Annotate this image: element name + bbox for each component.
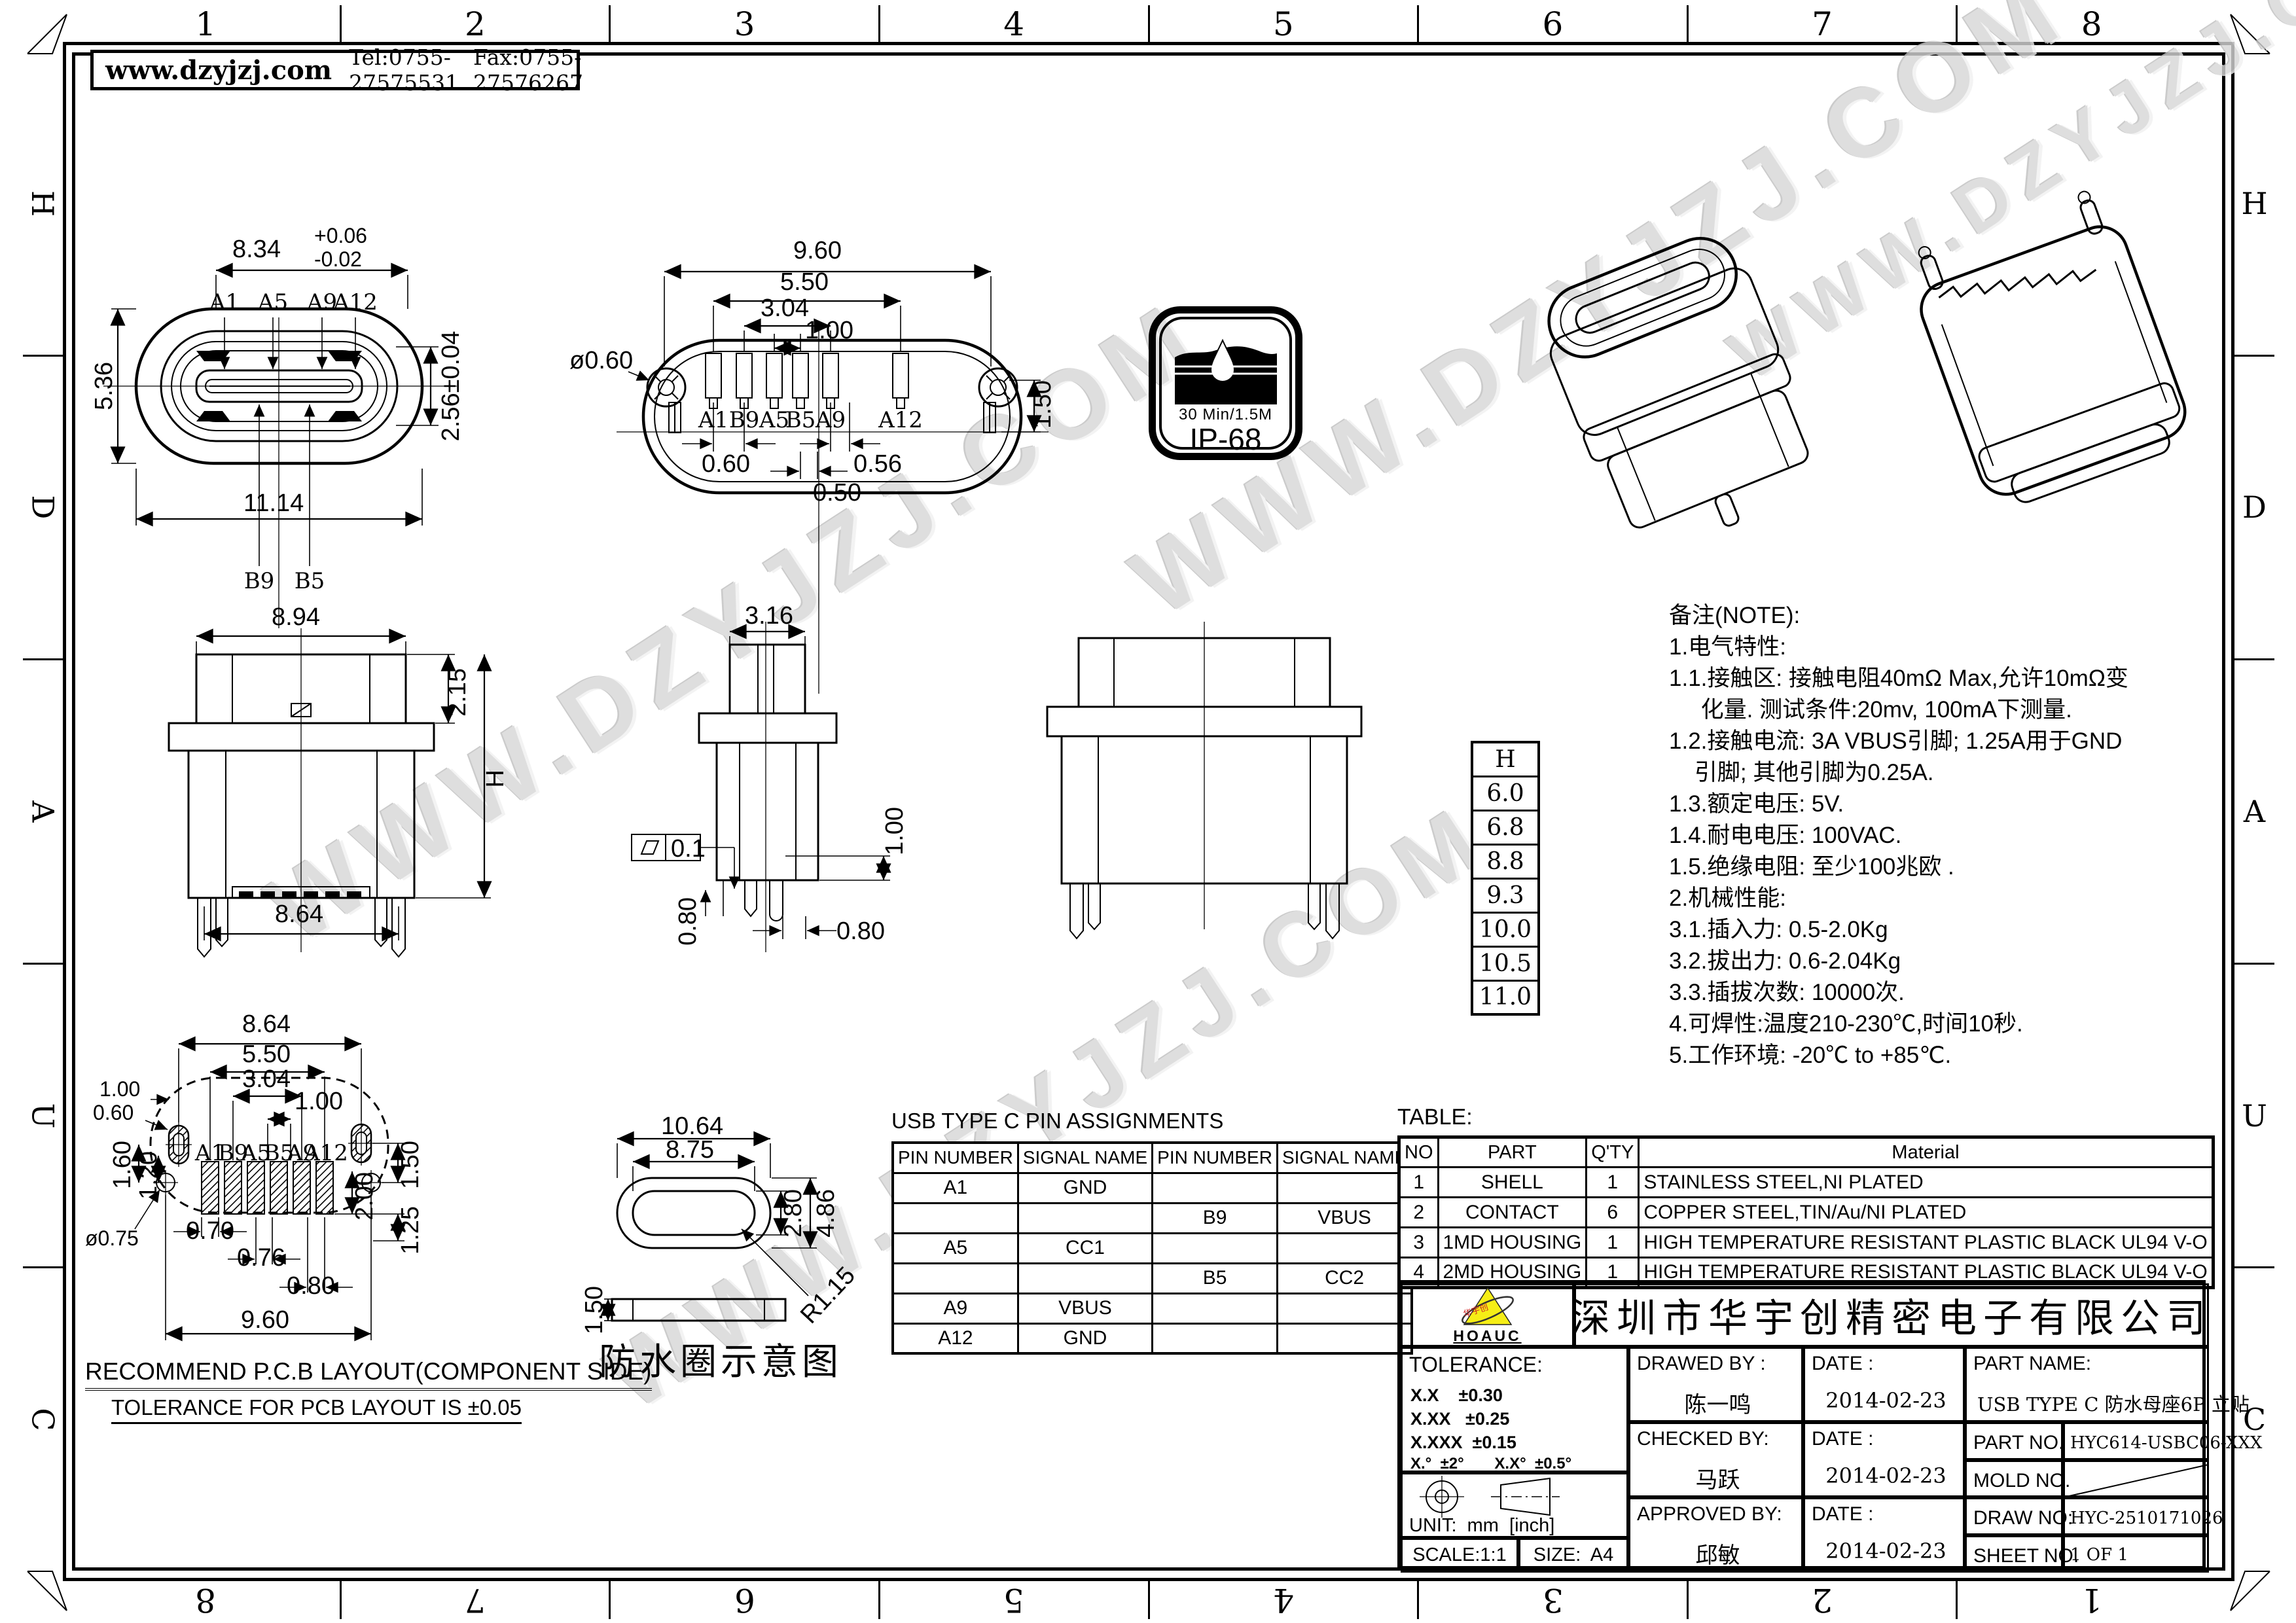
parts-section: TABLE: NO PART Q'TY Material 1SHELL1STAI…	[1397, 1105, 2215, 1289]
approved-by-label: APPROVED BY:	[1637, 1503, 1782, 1525]
part-no-label: PART NO.	[1973, 1432, 2064, 1454]
dim-front-tol-dn: -0.02	[314, 249, 362, 271]
pin-assignment-table: PIN NUMBER SIGNAL NAME PIN NUMBER SIGNAL…	[891, 1141, 1413, 1355]
zone-label: 4	[1150, 1581, 1420, 1619]
note-line: 化量. 测试条件:20mv, 100mA下测量.	[1669, 691, 2232, 722]
h-table-value: 10.0	[1472, 912, 1539, 946]
pin-label-b5: B5	[287, 568, 332, 594]
dim-rear-w2: 5.50	[780, 270, 829, 296]
pin-assignment-section: USB TYPE C PIN ASSIGNMENTS PIN NUMBER SI…	[891, 1109, 1413, 1355]
dim-pcb-t2: 5.50	[242, 1042, 291, 1068]
mold-no-label-cell: MOLD NO.	[1965, 1460, 2063, 1497]
header-contact-box: www.dzyjzj.com Tel:0755-27575531 Fax:075…	[90, 50, 580, 90]
dim-rear-hole: ø0.60	[569, 348, 633, 374]
zone-letter: D	[2242, 490, 2267, 525]
dim-pcb-r3: 1.25	[398, 1165, 424, 1296]
notes-block: 备注(NOTE): 1.电气特性: 1.1.接触区: 接触电阻40mΩ Max,…	[1669, 597, 2232, 1068]
pin-label: A12	[303, 1140, 349, 1166]
date-label: DATE :	[1812, 1353, 1873, 1375]
part-cell: SHELL	[1438, 1168, 1587, 1198]
dim-pcb-hole: ø0.75	[85, 1228, 139, 1250]
zone-letter: A	[2244, 794, 2265, 829]
dim-pcb-b2: 0.76	[237, 1245, 285, 1272]
pin-cell: A9	[893, 1293, 1018, 1323]
projection-symbol-icon	[1403, 1476, 1630, 1518]
zone-label: A	[2234, 660, 2274, 965]
dim-front-height: 5.36	[92, 321, 118, 452]
dim-rear-w3: 3.04	[761, 296, 809, 322]
drawed-date: 2014-02-23	[1805, 1388, 1967, 1413]
zone-number: 4	[1003, 5, 1024, 43]
signal-cell: GND	[1018, 1173, 1152, 1203]
pin-label-a5: A5	[250, 289, 296, 315]
table-row: B9VBUS	[893, 1203, 1412, 1233]
zone-label: 7	[342, 1581, 611, 1619]
dim-gasket-thickness: 1.50	[582, 1245, 608, 1376]
tolerance-row: X.XX ±0.25	[1410, 1409, 1509, 1429]
part-no-value-cell: HYC614-USBC06-XXX	[2063, 1422, 2209, 1460]
pin-cell	[1153, 1233, 1278, 1263]
approved-by-cell: APPROVED BY: 邱敏	[1628, 1497, 1803, 1573]
zone-label: D	[2234, 357, 2274, 661]
material-cell: STAINLESS STEEL,NI PLATED	[1639, 1168, 2213, 1198]
zone-label: 3	[611, 5, 880, 43]
checked-date-cell: DATE : 2014-02-23	[1803, 1422, 1965, 1497]
dim-gasket-h2: 4.86	[814, 1148, 840, 1279]
signal-cell: VBUS	[1018, 1293, 1152, 1323]
part-no-cell: 3	[1399, 1228, 1439, 1258]
signal-cell	[1277, 1233, 1412, 1263]
tolerance-label: TOLERANCE:	[1409, 1353, 1543, 1377]
header-website: www.dzyjzj.com	[105, 55, 332, 86]
draw-no-label: DRAW NO:	[1973, 1507, 2073, 1529]
date-label: DATE :	[1812, 1428, 1873, 1450]
material-cell: HIGH TEMPERATURE RESISTANT PLASTIC BLACK…	[1639, 1228, 2213, 1258]
corner-mark-icon	[26, 13, 72, 59]
header-fax: Fax:0755-27576267	[473, 45, 583, 96]
pin-table-title: USB TYPE C PIN ASSIGNMENTS	[891, 1109, 1413, 1133]
zone-label: 3	[1419, 1581, 1689, 1619]
draw-no-value: HYC-2510171026	[2070, 1508, 2223, 1528]
dim-rear-height: 1.50	[1030, 339, 1056, 470]
dim-pcb-b3: 0.80	[287, 1274, 335, 1300]
tolerance-cell: TOLERANCE: X.X ±0.30 X.XX ±0.25 X.XXX ±0…	[1401, 1347, 1628, 1472]
pin-cell	[893, 1203, 1018, 1233]
zone-label: U	[23, 965, 63, 1269]
zone-number: 6	[734, 1581, 755, 1619]
parts-table-label: TABLE:	[1397, 1105, 2215, 1130]
company-name-cell: 深圳市华宇创精密电子有限公司	[1574, 1283, 2209, 1347]
note-line: 1.电气特性:	[1669, 628, 2232, 660]
h-table-value: 6.0	[1472, 776, 1539, 810]
signal-cell: CC2	[1277, 1263, 1412, 1293]
tolerance-row: X.XXX ±0.15	[1410, 1433, 1516, 1453]
table-row: A9VBUS	[893, 1293, 1412, 1323]
zone-label: 1	[1958, 1581, 2225, 1619]
pin-label-b9: B9	[236, 568, 282, 594]
zone-number: 8	[2081, 5, 2102, 43]
dim-pcb-t3: 3.04	[242, 1067, 291, 1093]
pin-cell: B5	[1153, 1263, 1278, 1293]
parts-header: Q'TY	[1587, 1137, 1639, 1168]
zone-label: 6	[611, 1581, 880, 1619]
zone-label: 4	[880, 5, 1150, 43]
dim-rear-w1: 9.60	[793, 238, 842, 264]
scale-cell: SCALE:1:1	[1401, 1538, 1518, 1573]
dim-pcb-l4: 1.20	[136, 1110, 162, 1241]
note-line: 3.2.拔出力: 0.6-2.04Kg	[1669, 942, 2232, 974]
screw-icon	[647, 368, 685, 406]
part-name-value: USB TYPE C 防水母座6P 立贴	[1977, 1389, 2250, 1417]
zone-letter: U	[26, 1103, 61, 1128]
projection-cell: UNIT: mm [inch]	[1401, 1472, 1628, 1538]
zone-label: 6	[1419, 5, 1689, 43]
zone-strip-left: H D A U C	[23, 52, 63, 1571]
zone-label: A	[23, 660, 63, 965]
zone-label: 8	[72, 1581, 342, 1619]
zone-label: H	[2234, 52, 2274, 357]
tolerance-row: X.X ±0.30	[1410, 1385, 1503, 1406]
part-cell: 1MD HOUSING	[1438, 1228, 1587, 1258]
table-row: A5CC1	[893, 1233, 1412, 1263]
part-no-value: HYC614-USBC06-XXX	[2070, 1433, 2262, 1453]
note-line: 备注(NOTE):	[1669, 597, 2232, 628]
dim-front-tongue: 2.56±0.04	[439, 321, 465, 452]
dim-rear-p3: 0.50	[813, 480, 861, 507]
zone-number: 5	[1273, 5, 1294, 43]
date-label: DATE :	[1812, 1503, 1873, 1525]
h-table-value: 6.8	[1472, 810, 1539, 844]
zone-number: 7	[1812, 5, 1833, 43]
zone-letter: D	[25, 495, 60, 520]
pin-label-a1: A1	[202, 289, 247, 315]
zone-number: 7	[465, 1581, 486, 1619]
note-line: 5.工作环境: -20℃ to +85℃.	[1669, 1037, 2232, 1068]
view-side-section: 8.94 2.15 H 8.64	[151, 609, 602, 955]
approved-date-cell: DATE : 2014-02-23	[1803, 1497, 1965, 1573]
pin-table-header: PIN NUMBER	[1153, 1143, 1278, 1173]
material-cell: COPPER STEEL,TIN/Au/NI PLATED	[1639, 1198, 2213, 1228]
dim-side-step: 2.15	[445, 627, 471, 758]
scale-label: SCALE:1:1	[1412, 1544, 1506, 1566]
zone-number: 1	[2081, 1581, 2102, 1619]
zone-number: 4	[1273, 1581, 1294, 1619]
view-mid-section: 3.16 0.1 1.00 0.80 0.80	[583, 609, 949, 955]
dim-front-width: 8.34	[232, 237, 281, 263]
zone-letter: H	[2241, 186, 2267, 221]
pcb-caption: RECOMMEND P.C.B LAYOUT(COMPONENT SIDE)	[85, 1358, 652, 1391]
drawed-by-name: 陈一鸣	[1630, 1387, 1805, 1419]
pin-cell: A1	[893, 1173, 1018, 1203]
zone-label: 1	[72, 5, 342, 43]
zone-number: 3	[1543, 1581, 1564, 1619]
unit-label: UNIT: mm [inch]	[1409, 1515, 1554, 1537]
view-pcb-layout: 8.64 5.50 3.04 1.00 1.00 0.60 1.60 1.20 …	[111, 1021, 563, 1427]
pin-label-a12: A12	[332, 289, 378, 315]
gasket-caption: 防水圈示意图	[599, 1332, 842, 1385]
zone-label: C	[2234, 1268, 2274, 1571]
pin-cell: B9	[1153, 1203, 1278, 1233]
signal-cell: CC1	[1018, 1233, 1152, 1263]
company-name: 深圳市华宇创精密电子有限公司	[1571, 1287, 2212, 1344]
checked-by-label: CHECKED BY:	[1637, 1428, 1769, 1450]
part-name-cell: PART NAME: USB TYPE C 防水母座6P 立贴	[1965, 1347, 2209, 1422]
note-line: 1.5.绝缘电阻: 至少100兆欧 .	[1669, 848, 2232, 880]
zone-label: D	[23, 357, 63, 661]
note-line: 1.2.接触电流: 3A VBUS引脚; 1.25A用于GND	[1669, 722, 2232, 754]
table-row: A12GND	[893, 1323, 1412, 1353]
pcb-tolerance-note: TOLERANCE FOR PCB LAYOUT IS ±0.05	[111, 1395, 522, 1424]
size-cell: SIZE: A4	[1518, 1538, 1628, 1573]
note-line: 1.1.接触区: 接触电阻40mΩ Max,允许10mΩ变	[1669, 660, 2232, 691]
zone-label: 5	[1150, 5, 1420, 43]
isometric-drawing	[1492, 216, 2186, 543]
dim-pcb-l1: 1.00	[99, 1079, 140, 1101]
mold-no-label: MOLD NO.	[1973, 1470, 2070, 1492]
note-line: 3.3.插拔次数: 10000次.	[1669, 974, 2232, 1005]
zone-label: 2	[1689, 1581, 1958, 1619]
zone-number: 2	[1812, 1581, 1833, 1619]
dim-mid-right: 1.00	[882, 766, 908, 897]
signal-cell: VBUS	[1277, 1203, 1412, 1233]
signal-cell: GND	[1018, 1323, 1152, 1353]
view-side-plain	[1021, 609, 1388, 936]
drawing-sheet: WWW.DZYJZJ.COM WWW.DZYJZJ.COM WWW.DZYJZJ…	[0, 0, 2296, 1623]
pin-cell	[1153, 1323, 1278, 1353]
parts-header: Material	[1639, 1137, 2213, 1168]
ip68-badge: 30 Min/1.5M IP-68	[1149, 306, 1302, 460]
dim-pcb-t4: 1.00	[295, 1089, 343, 1115]
dim-side-h: H	[483, 713, 509, 844]
pin-cell	[893, 1263, 1018, 1293]
h-table-value: 10.5	[1472, 946, 1539, 980]
dim-side-bottom: 8.64	[275, 902, 323, 928]
zone-label: 2	[342, 5, 611, 43]
height-option-table: H 6.0 6.8 8.8 9.3 10.0 10.5 11.0	[1471, 741, 1540, 1016]
zone-label: H	[23, 52, 63, 357]
note-line: 4.可焊性:温度210-230℃,时间10秒.	[1669, 1005, 2232, 1037]
zone-number: 2	[465, 5, 486, 43]
signal-cell	[1018, 1263, 1152, 1293]
part-cell: CONTACT	[1438, 1198, 1587, 1228]
title-block: 华宇创 HOAUC 深圳市华宇创精密电子有限公司 TOLERANCE: X.X …	[1397, 1280, 2206, 1569]
drawed-by-label: DRAWED BY :	[1637, 1353, 1766, 1375]
signal-cell	[1277, 1173, 1412, 1203]
parts-header: PART	[1438, 1137, 1587, 1168]
signal-cell	[1277, 1323, 1412, 1353]
draw-no-label-cell: DRAW NO:	[1965, 1497, 2063, 1535]
zone-number: 3	[734, 5, 755, 43]
table-row: A1GND	[893, 1173, 1412, 1203]
ip68-rating: IP-68	[1149, 421, 1302, 457]
dim-rear-p2: 0.56	[853, 452, 902, 478]
dim-pcb-b1: 0.70	[186, 1219, 234, 1245]
approved-by-name: 邱敏	[1630, 1537, 1805, 1569]
qty-cell: 1	[1587, 1168, 1639, 1198]
logo-cell: 华宇创 HOAUC	[1401, 1283, 1574, 1347]
pin-cell	[1153, 1293, 1278, 1323]
sheet-no-value-cell: 1 OF 1	[2063, 1535, 2209, 1573]
zone-strip-bottom: 8 7 6 5 4 3 2 1	[72, 1581, 2225, 1619]
contact-pins	[706, 353, 908, 408]
corner-mark-icon	[26, 1567, 72, 1613]
zone-label: 5	[880, 1581, 1150, 1619]
part-no-cell: 2	[1399, 1198, 1439, 1228]
logo-name-text: HOAUC	[1403, 1327, 1572, 1345]
pin-table-header: SIGNAL NAME	[1018, 1143, 1152, 1173]
qty-cell: 1	[1587, 1228, 1639, 1258]
note-line: 引脚; 其他引脚为0.25A.	[1669, 754, 2232, 785]
side-section-drawing	[151, 609, 602, 955]
dim-pcb-l3: 1.60	[110, 1099, 136, 1230]
qty-cell: 6	[1587, 1198, 1639, 1228]
side-plain-drawing	[1021, 609, 1388, 936]
pin-table-header: SIGNAL NAME	[1277, 1143, 1412, 1173]
corner-mark-icon	[2225, 1567, 2271, 1613]
dim-mid-left: 0.80	[675, 856, 702, 987]
part-no-cell: 1	[1399, 1168, 1439, 1198]
checked-date: 2014-02-23	[1805, 1463, 1967, 1488]
zone-letter: U	[2242, 1098, 2267, 1133]
zone-label: C	[23, 1268, 63, 1571]
table-row: 31MD HOUSING1HIGH TEMPERATURE RESISTANT …	[1399, 1228, 2214, 1258]
h-table-value: 9.3	[1472, 878, 1539, 912]
checked-by-cell: CHECKED BY: 马跃	[1628, 1422, 1803, 1497]
pin-label: A12	[878, 407, 924, 433]
checked-by-name: 马跃	[1630, 1462, 1805, 1494]
zone-letter: C	[25, 1408, 60, 1431]
pin-cell: A12	[893, 1323, 1018, 1353]
pin-cell	[1153, 1173, 1278, 1203]
dim-front-tol-up: +0.06	[314, 225, 367, 247]
mold-no-value-cell	[2063, 1460, 2209, 1497]
header-tel: Tel:0755-27575531	[349, 45, 459, 96]
table-row: 2CONTACT6COPPER STEEL,TIN/Au/NI PLATED	[1399, 1198, 2214, 1228]
zone-letter: A	[25, 800, 60, 822]
note-line: 3.1.插入力: 0.5-2.0Kg	[1669, 911, 2232, 942]
drawed-by-cell: DRAWED BY : 陈一鸣	[1628, 1347, 1803, 1422]
pin-label: A9	[808, 407, 853, 433]
part-no-label-cell: PART NO.	[1965, 1422, 2063, 1460]
note-line: 1.4.耐电电压: 100VAC.	[1669, 817, 2232, 848]
table-row: 1SHELL1STAINLESS STEEL,NI PLATED	[1399, 1168, 2214, 1198]
h-table-header: H	[1472, 742, 1539, 776]
pin-cell: A5	[893, 1233, 1018, 1263]
note-line: 2.机械性能:	[1669, 880, 2232, 911]
tolerance-angles: X.° ±2° X.X° ±0.5°	[1410, 1455, 1571, 1473]
view-isometric	[1492, 216, 2186, 543]
approved-date: 2014-02-23	[1805, 1539, 1967, 1563]
dim-rear-p1: 0.60	[702, 452, 750, 478]
zone-letter: H	[26, 190, 61, 217]
h-table-value: 11.0	[1472, 980, 1539, 1014]
zone-number: 6	[1543, 5, 1564, 43]
size-label: SIZE: A4	[1534, 1544, 1614, 1566]
dim-mid-bottom: 0.80	[836, 919, 885, 945]
signal-cell	[1018, 1203, 1152, 1233]
h-table-value: 8.8	[1472, 844, 1539, 878]
dim-pcb-t1: 8.64	[242, 1012, 291, 1038]
draw-no-value-cell: HYC-2510171026	[2063, 1497, 2209, 1535]
dim-gasket-h1: 2.80	[781, 1148, 807, 1279]
zone-number: 1	[195, 5, 216, 43]
dim-mid-top: 3.16	[745, 603, 793, 630]
dim-front-total: 11.14	[243, 491, 304, 517]
pin-table-header: PIN NUMBER	[893, 1143, 1018, 1173]
view-gasket: 10.64 8.75 2.80 4.86 R1.15 1.50 防水圈示意图	[592, 1073, 900, 1387]
parts-header: NO	[1399, 1137, 1439, 1168]
part-name-label: PART NAME:	[1973, 1353, 2091, 1375]
zone-label: U	[2234, 965, 2274, 1269]
zone-strip-right: H D A U C	[2234, 52, 2274, 1571]
zone-number: 5	[1003, 1581, 1024, 1619]
dim-side-top: 8.94	[272, 605, 320, 631]
dim-rear-w4: 1.00	[805, 318, 853, 344]
dim-pcb-b4: 9.60	[241, 1308, 289, 1334]
screw-icon	[979, 368, 1017, 406]
note-line: 1.3.额定电压: 5V.	[1669, 785, 2232, 817]
parts-table: NO PART Q'TY Material 1SHELL1STAINLESS S…	[1397, 1135, 2215, 1289]
table-row: B5CC2	[893, 1263, 1412, 1293]
sheet-no-value: 1 OF 1	[2070, 1545, 2128, 1565]
signal-cell	[1277, 1293, 1412, 1323]
solder-pads	[202, 1162, 333, 1214]
dim-gasket-w2: 8.75	[666, 1137, 714, 1164]
dim-pcb-r2: 2.00	[352, 1131, 378, 1262]
drawed-date-cell: DATE : 2014-02-23	[1803, 1347, 1965, 1422]
zone-number: 8	[195, 1581, 216, 1619]
sheet-no-label-cell: SHEET NO.	[1965, 1535, 2063, 1573]
